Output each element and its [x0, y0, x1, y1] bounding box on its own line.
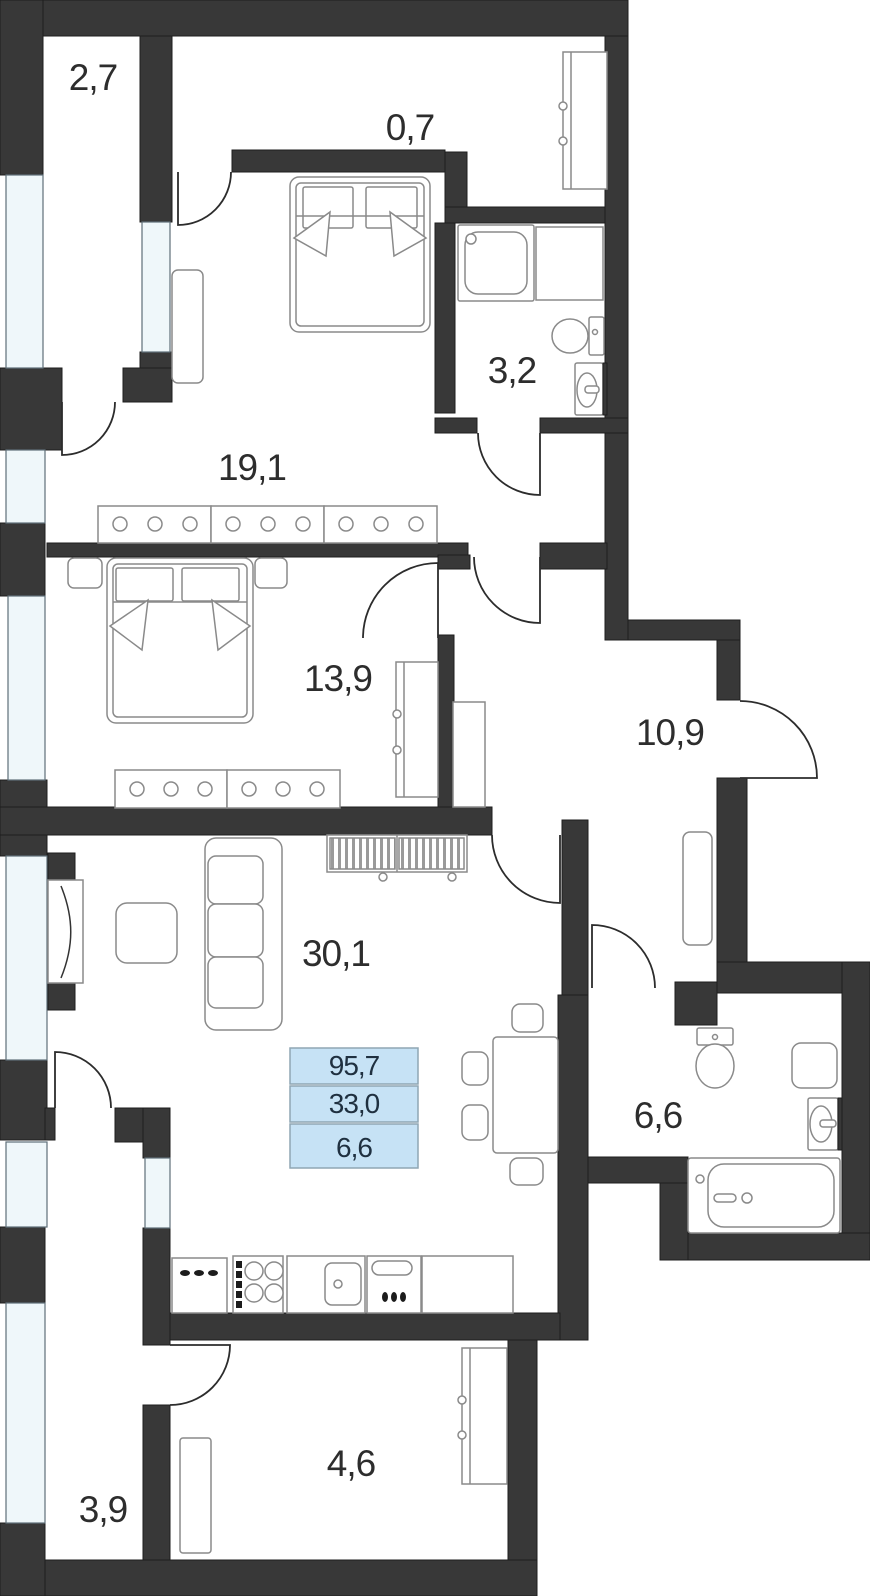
wardrobe-icon: [172, 270, 203, 383]
window-icon: [6, 175, 43, 368]
door-bedroom-2-icon: [363, 563, 438, 638]
door-balcony-bottom-icon: [55, 1052, 111, 1108]
door-balcony-top-icon: [62, 402, 115, 455]
room-label-closet: 0,7: [386, 107, 434, 148]
kitchen-sink-icon: [325, 1263, 361, 1305]
area-info-box: 95,7 33,0 6,6: [290, 1048, 418, 1168]
kitchen-counter-icon: [172, 1256, 513, 1313]
door-entry-icon: [740, 701, 817, 778]
living-area-value: 33,0: [329, 1088, 380, 1119]
door-closet-icon: [178, 172, 231, 225]
floor-plan-canvas: 2,7 0,7 3,2 19,1 13,9 10,9 30,1 6,6 3,9 …: [0, 0, 870, 1596]
radiator-bench-icon: [115, 770, 340, 808]
door-entry-room-icon: [170, 1345, 230, 1405]
closet-cabinet-icon: [559, 52, 607, 189]
total-area-value: 95,7: [329, 1050, 380, 1081]
door-bathroom-main-icon: [592, 925, 655, 988]
room-label-entry-room: 4,6: [327, 1443, 375, 1484]
room-label-bedroom-1: 19,1: [218, 447, 286, 488]
bathtub-icon: [688, 1158, 840, 1233]
window-icon: [6, 1303, 45, 1523]
dining-table-icon: [493, 1037, 558, 1153]
window-icon: [6, 450, 45, 523]
room-label-living: 30,1: [302, 933, 370, 974]
shower-icon: [458, 225, 534, 301]
room-label-bedroom-2: 13,9: [304, 658, 372, 699]
double-bed-icon: [107, 558, 253, 723]
window-icon: [142, 222, 170, 352]
double-bed-icon: [290, 177, 430, 332]
room-label-bathroom-small: 3,2: [488, 350, 536, 391]
door-living-icon: [492, 835, 560, 903]
armchair-icon: [116, 903, 177, 963]
window-icon: [6, 856, 47, 1060]
radiator-bench-icon: [98, 506, 437, 543]
window-icon: [8, 596, 45, 780]
kitchen-area-value: 6,6: [336, 1132, 372, 1163]
washer-slot-icon: [536, 227, 603, 300]
room-label-bathroom-main: 6,6: [634, 1095, 682, 1136]
window-icon: [6, 1142, 47, 1227]
door-bedroom-1-icon: [474, 557, 540, 623]
dresser-icon: [393, 662, 438, 797]
washing-machine-icon: [792, 1043, 837, 1088]
toilet-icon: [696, 1028, 734, 1088]
room-label-hallway: 10,9: [636, 712, 704, 753]
dresser-icon: [458, 1348, 507, 1484]
sofa-icon: [205, 838, 282, 1030]
room-label-balcony-bottom: 3,9: [79, 1489, 127, 1530]
window-icon: [145, 1158, 170, 1228]
shelf-unit-icon: [327, 835, 467, 881]
sink-icon: [575, 363, 607, 415]
toilet-icon: [552, 317, 604, 355]
tv-stand-icon: [48, 853, 83, 1010]
door-bathroom-small-icon: [478, 433, 540, 495]
wardrobe-icon: [180, 1438, 211, 1553]
room-label-balcony-top: 2,7: [69, 57, 117, 98]
sink-icon: [808, 1098, 842, 1150]
floor-plan: 2,7 0,7 3,2 19,1 13,9 10,9 30,1 6,6 3,9 …: [0, 0, 870, 1596]
